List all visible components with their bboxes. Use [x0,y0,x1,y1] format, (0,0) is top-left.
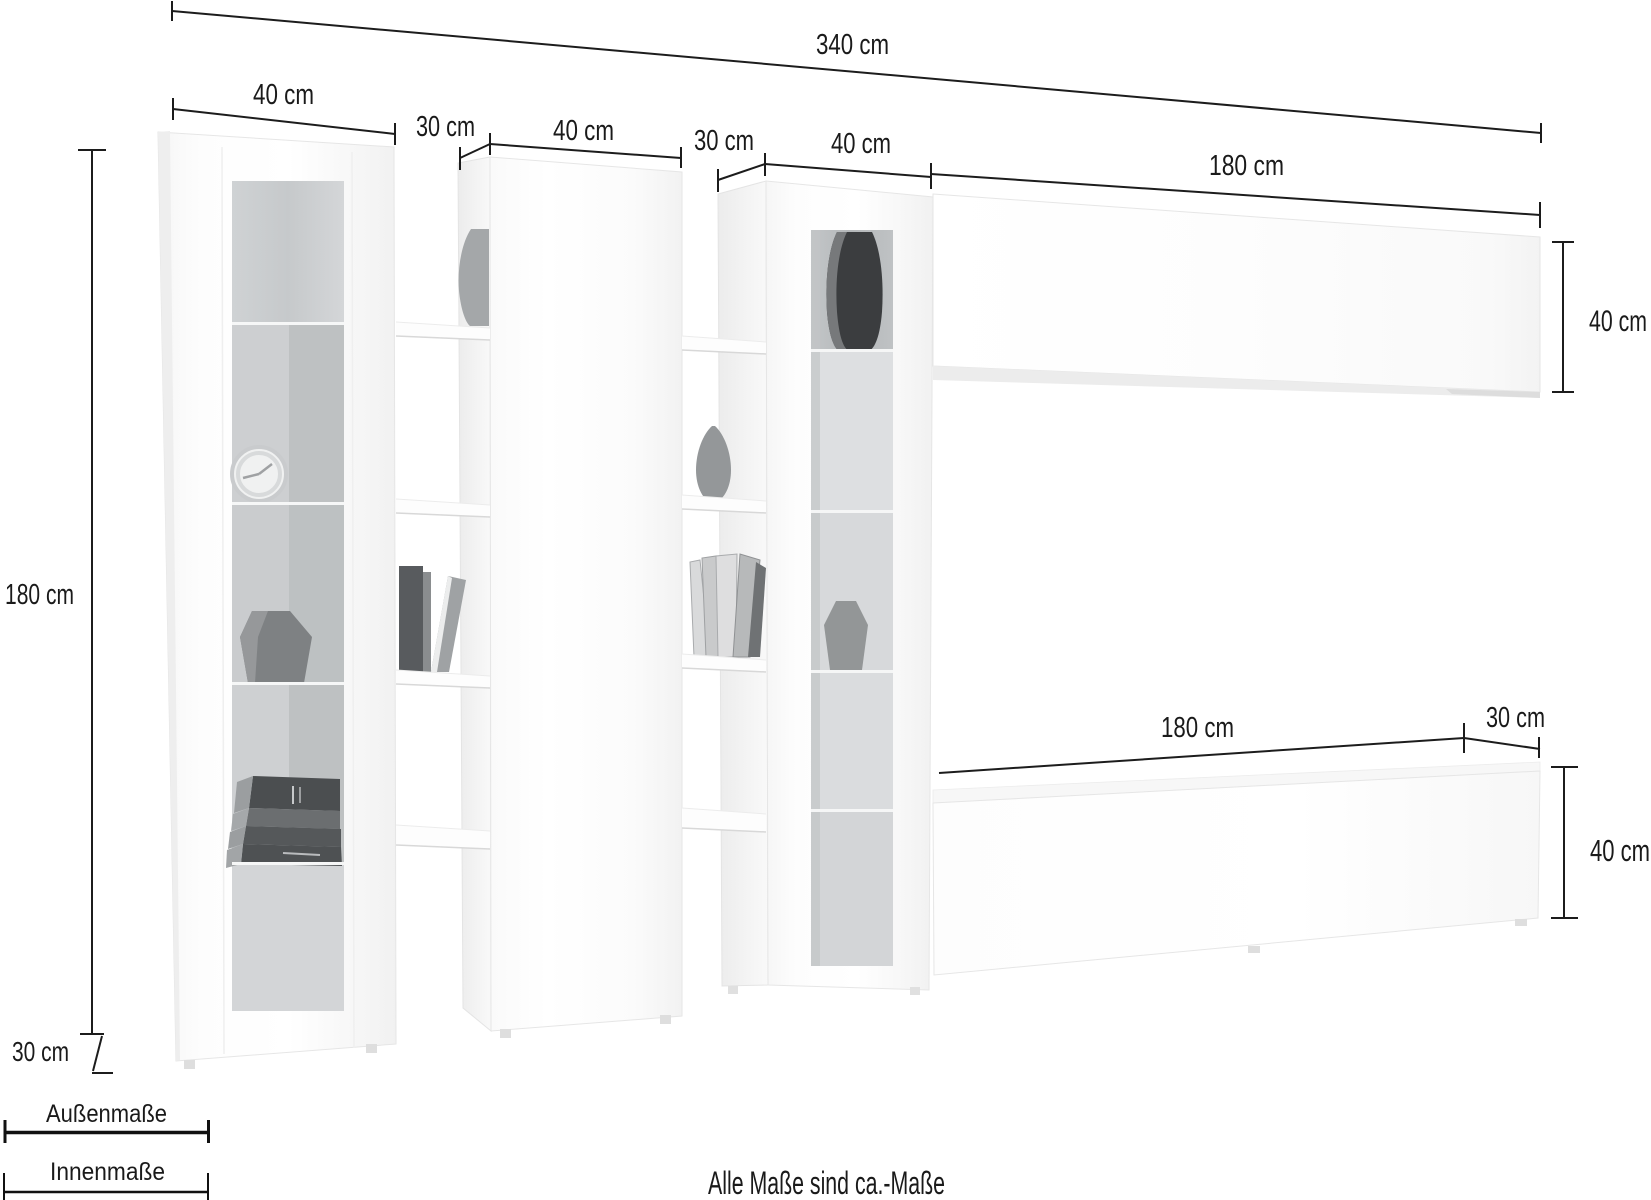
svg-text:30 cm: 30 cm [694,125,754,157]
svg-text:40 cm: 40 cm [1590,833,1650,868]
svg-text:180 cm: 180 cm [5,579,74,611]
svg-text:40 cm: 40 cm [831,128,891,160]
svg-text:Außenmaße: Außenmaße [46,1100,167,1128]
svg-text:180 cm: 180 cm [1209,150,1284,182]
svg-text:40 cm: 40 cm [1589,305,1647,338]
svg-text:30 cm: 30 cm [416,111,475,143]
svg-text:Innenmaße: Innenmaße [50,1158,165,1186]
svg-text:30 cm: 30 cm [12,1036,69,1067]
svg-text:40 cm: 40 cm [553,115,614,147]
svg-text:Alle Maße sind ca.-Maße: Alle Maße sind ca.-Maße [708,1165,945,1200]
svg-text:30 cm: 30 cm [1486,702,1545,734]
svg-text:180 cm: 180 cm [1161,712,1234,744]
svg-text:40 cm: 40 cm [253,79,314,111]
svg-text:340 cm: 340 cm [816,29,889,61]
